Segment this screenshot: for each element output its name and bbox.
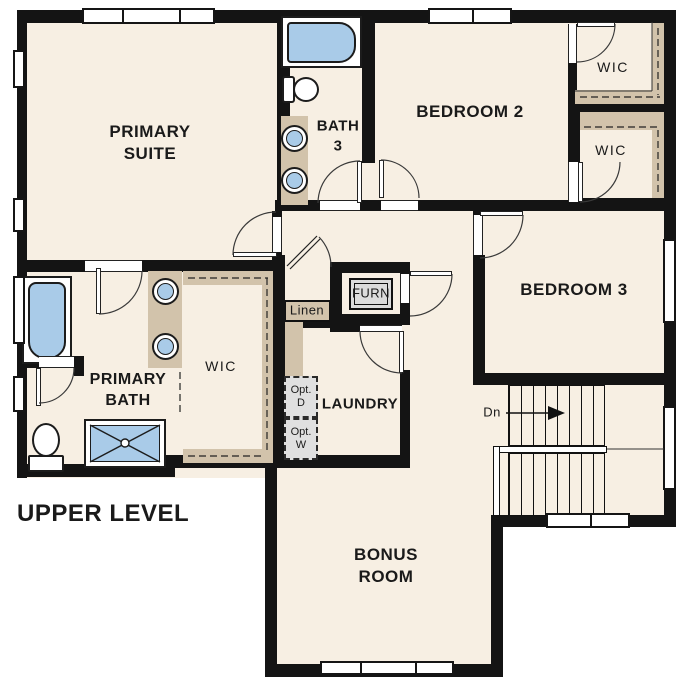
furnace-label: FURN — [352, 286, 390, 303]
room-label-bath-3: BATH 3 — [317, 117, 360, 156]
plan-linework — [0, 0, 687, 687]
door-arc — [99, 271, 142, 314]
door-arc — [381, 160, 419, 198]
door-arc — [360, 331, 402, 373]
closet-shelf-dashes — [180, 28, 660, 456]
room-label-wic-primary: WIC — [205, 357, 237, 375]
door-arc — [319, 237, 331, 267]
room-label-primary-suite: PRIMARY SUITE — [109, 121, 190, 165]
door-arc — [39, 368, 74, 403]
shower-drain-mark — [90, 425, 160, 462]
room-label-laundry: LAUNDRY — [322, 394, 398, 414]
stairs-down-label: Dn — [483, 405, 501, 422]
room-label-bedroom-2: BEDROOM 2 — [416, 101, 523, 123]
room-label-primary-bath: PRIMARY BATH — [90, 370, 167, 412]
room-label-bonus-room: BONUS ROOM — [354, 544, 418, 588]
room-label-wic-bedroom2: WIC — [597, 58, 629, 76]
stairs-down-arrow — [506, 406, 565, 420]
floor-plan: PRIMARY SUITE BATH 3 BEDROOM 2 BEDROOM 3… — [0, 0, 687, 687]
door-arc — [577, 24, 615, 62]
door-arc — [318, 161, 360, 203]
door-arc — [580, 162, 620, 202]
door-swing-arcs — [39, 24, 620, 403]
optional-washer-label: Opt. W — [291, 426, 312, 452]
closet-inner-lines — [575, 22, 664, 449]
door-arc — [233, 212, 276, 255]
page-title: UPPER LEVEL — [17, 498, 189, 529]
room-label-wic-bedroom3: WIC — [595, 141, 627, 159]
optional-dryer-label: Opt. D — [291, 384, 312, 410]
door-arc — [480, 215, 523, 258]
room-label-bedroom-3: BEDROOM 3 — [520, 279, 627, 301]
door-arc — [410, 274, 452, 316]
linen-label: Linen — [290, 303, 324, 320]
angled-door-panel — [287, 236, 320, 269]
